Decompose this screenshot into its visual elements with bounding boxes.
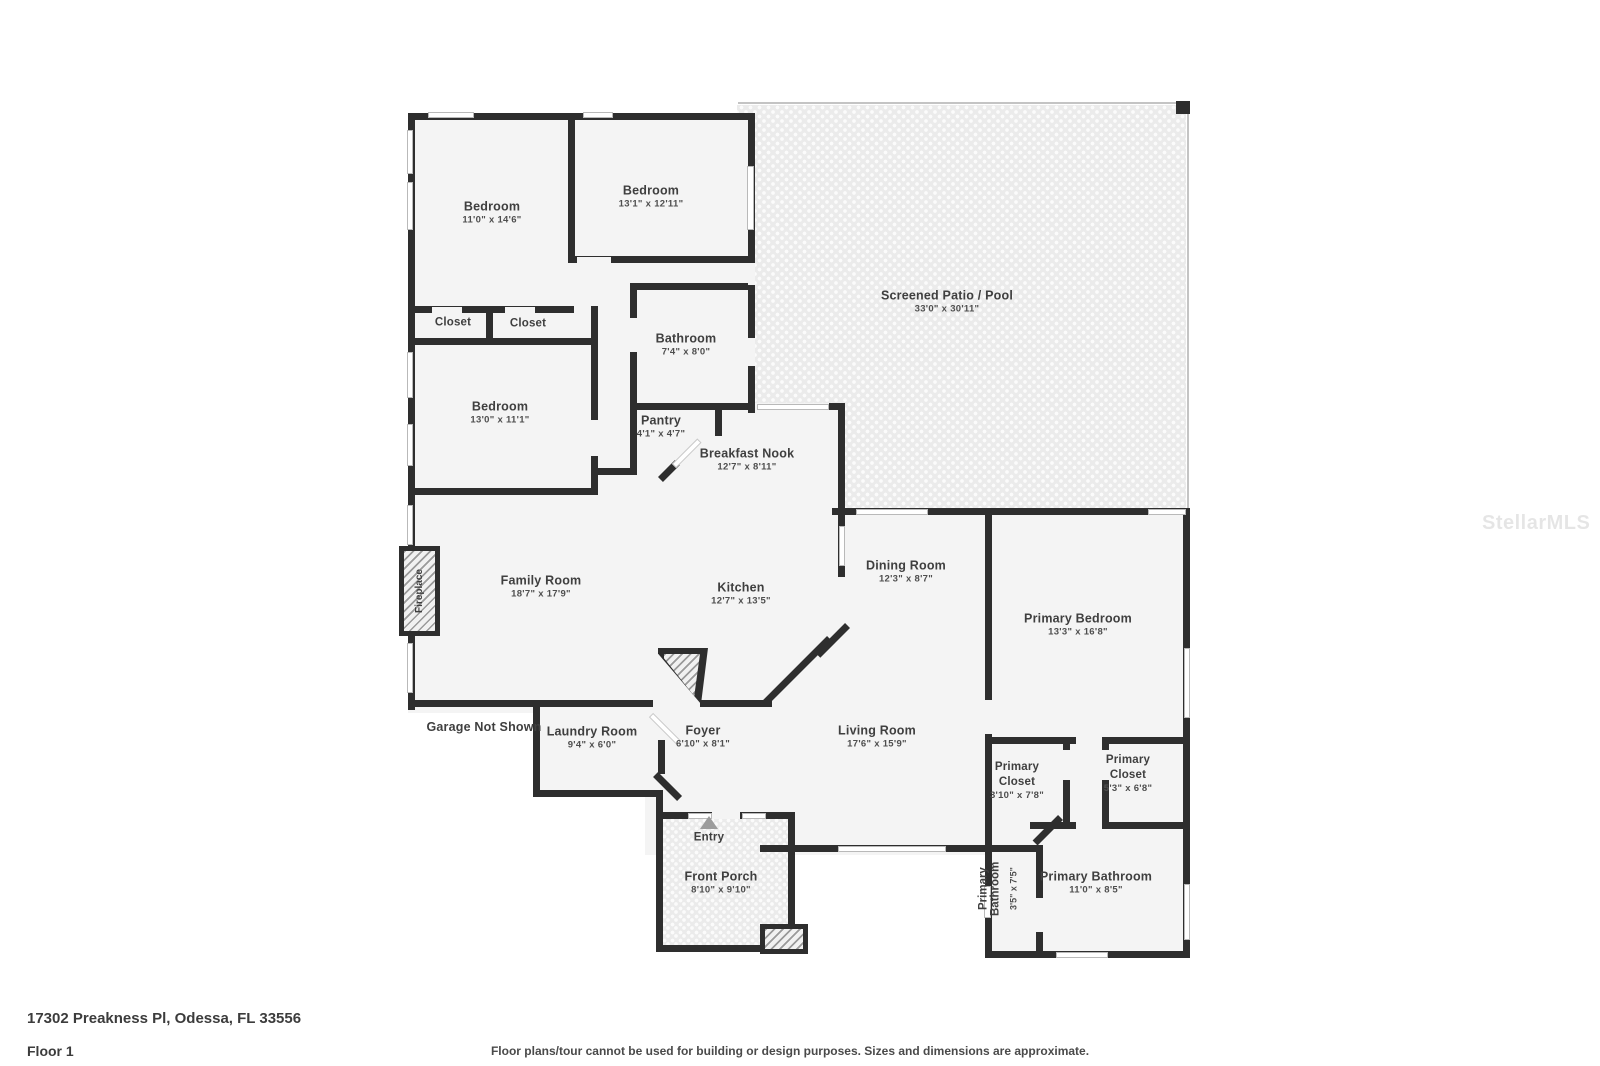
room-dims: 11'0" x 14'6" (462, 215, 521, 227)
room-label-screened-patio: Screened Patio / Pool 33'0" x 30'11" (881, 288, 1013, 317)
room-label-breakfast-nook: Breakfast Nook 12'7" x 8'11" (700, 446, 795, 475)
room-label-kitchen: Kitchen 12'7" x 13'5" (711, 580, 771, 609)
room-dims: 5'3" x 6'8" (1096, 783, 1160, 795)
wall-segment (408, 700, 653, 707)
room-name: Bathroom (656, 331, 717, 347)
room-dims: 13'3" x 16'8" (1024, 627, 1132, 639)
room-name: Primary Closet (987, 760, 1047, 790)
room-name: Garage Not Shown (426, 719, 541, 735)
room-label-front-porch: Front Porch 8'10" x 9'10" (684, 869, 757, 898)
entry-label: Entry (694, 831, 724, 846)
window-marker (583, 112, 613, 118)
window-marker (407, 130, 413, 174)
wall-segment (838, 403, 845, 515)
patio-screen-top (737, 101, 1190, 105)
window-marker (747, 166, 754, 230)
room-dims: 18'7" x 17'9" (501, 589, 582, 601)
room-label-primary-bedroom: Primary Bedroom 13'3" x 16'8" (1024, 611, 1132, 640)
room-dims: 11'0" x 8'5" (1040, 885, 1152, 897)
wall-segment (630, 403, 755, 410)
room-name: Bedroom (462, 199, 521, 215)
room-label-primary-closet-a: Primary Closet 3'10" x 7'8" (987, 760, 1047, 802)
door-gap (1036, 898, 1043, 932)
room-dims: 9'4" x 6'0" (547, 740, 638, 752)
room-name: Closet (510, 317, 546, 332)
window-marker (407, 643, 413, 693)
porch-step-hatch (765, 929, 803, 949)
room-label-foyer: Foyer 6'10" x 8'1" (676, 723, 730, 752)
room-dims: 8'10" x 9'10" (684, 885, 757, 897)
garage-note-label: Garage Not Shown (426, 719, 541, 735)
room-name: Primary Bathroom (1040, 869, 1152, 885)
window-marker (742, 813, 766, 819)
wall-segment (715, 403, 722, 436)
wall-segment (591, 306, 598, 495)
wall-segment (408, 488, 598, 495)
window-marker (428, 112, 474, 118)
fireplace-box: Fireplace (399, 546, 440, 636)
window-marker (839, 526, 845, 566)
door-gap (505, 307, 535, 313)
window-marker (856, 509, 928, 515)
room-dims: 12'7" x 8'11" (700, 462, 795, 474)
window-marker (1148, 509, 1186, 515)
room-dims: 6'10" x 8'1" (676, 739, 730, 751)
window-marker (1184, 648, 1190, 718)
wall-segment (630, 283, 637, 475)
room-label-bedroom-3: Bedroom 13'0" x 11'1" (470, 399, 529, 428)
wall-segment (568, 113, 575, 263)
room-label-bedroom-1: Bedroom 11'0" x 14'6" (462, 199, 521, 228)
room-label-living-room: Living Room 17'6" x 15'9" (838, 723, 916, 752)
window-marker (838, 846, 946, 852)
room-name: Bedroom (619, 183, 684, 199)
room-name: Screened Patio / Pool (881, 288, 1013, 304)
door-gap (432, 307, 462, 313)
door-gap (577, 257, 611, 263)
door-gap (748, 338, 755, 366)
room-label-closet-a: Closet (435, 316, 471, 331)
room-label-dining-room: Dining Room 12'3" x 8'7" (866, 558, 946, 587)
fireplace-label: Fireplace (411, 569, 429, 613)
room-dims: 17'6" x 15'9" (838, 739, 916, 751)
door-gap (1063, 750, 1070, 780)
wall-segment (591, 468, 637, 475)
room-dims: 7'4" x 8'0" (656, 347, 717, 359)
disclaimer-text: Floor plans/tour cannot be used for buil… (400, 1044, 1180, 1058)
wall-segment (408, 338, 598, 345)
patio-screen-right (1186, 101, 1190, 515)
porch-step (760, 924, 808, 954)
room-dims: 13'1" x 12'11" (619, 199, 684, 211)
room-dims: 3'5" x 7'5" (1009, 868, 1019, 911)
room-label-family-room: Family Room 18'7" x 17'9" (501, 573, 582, 602)
door-gap (630, 318, 637, 352)
window-marker (407, 424, 413, 466)
door-gap (748, 263, 755, 285)
room-name: Front Porch (684, 869, 757, 885)
window-marker (1184, 884, 1190, 940)
room-dims: 13'0" x 11'1" (470, 415, 529, 427)
wall-segment (658, 740, 665, 774)
window-marker (407, 182, 413, 230)
door-gap (1076, 737, 1102, 744)
room-label-laundry-room: Laundry Room 9'4" x 6'0" (547, 724, 638, 753)
window-marker (407, 352, 413, 398)
room-name: Pantry (637, 413, 686, 429)
room-name: Kitchen (711, 580, 771, 596)
room-dims: 33'0" x 30'11" (881, 304, 1013, 316)
room-label-primary-bathroom: Primary Bathroom 11'0" x 8'5" (1040, 869, 1152, 898)
window-marker (1056, 952, 1108, 958)
room-dims: 3'10" x 7'8" (987, 790, 1047, 802)
room-name: Primary Bedroom (1024, 611, 1132, 627)
room-name: Family Room (501, 573, 582, 589)
room-name: Dining Room (866, 558, 946, 574)
floor-plan-page: { "page": { "address": "17302 Preakness … (0, 0, 1600, 1066)
room-label-bedroom-2: Bedroom 13'1" x 12'11" (619, 183, 684, 212)
room-name: Breakfast Nook (700, 446, 795, 462)
room-name: Laundry Room (547, 724, 638, 740)
door-gap (985, 700, 992, 734)
room-dims: 4'1" x 4'7" (637, 429, 686, 441)
room-dims: 12'3" x 8'7" (866, 574, 946, 586)
patio-corner-stub (1176, 101, 1190, 114)
wall-segment (1102, 822, 1190, 829)
entry-arrow-icon (700, 816, 718, 829)
room-name: Living Room (838, 723, 916, 739)
room-name: Primary Bathroom (978, 843, 1002, 935)
room-label-primary-bathroom-small: Primary Bathroom 3'5" x 7'5" (978, 843, 1023, 935)
door-gap (591, 420, 598, 456)
room-name: Foyer (676, 723, 730, 739)
room-label-primary-closet-b: Primary Closet 5'3" x 6'8" (1096, 753, 1160, 795)
room-name: Fireplace (414, 569, 425, 613)
room-label-pantry: Pantry 4'1" x 4'7" (637, 413, 686, 442)
room-label-closet-b: Closet (510, 317, 546, 332)
room-name: Primary Closet (1096, 753, 1160, 783)
window-marker (407, 505, 413, 545)
stellar-mls-watermark: StellarMLS (1482, 512, 1590, 535)
wall-segment (533, 790, 663, 797)
window-marker (757, 404, 829, 410)
address-text: 17302 Preakness Pl, Odessa, FL 33556 (27, 1010, 301, 1027)
room-dims: 12'7" x 13'5" (711, 596, 771, 608)
wall-segment (630, 283, 755, 290)
room-name: Entry (694, 831, 724, 846)
floor-label: Floor 1 (27, 1043, 74, 1059)
room-label-bathroom: Bathroom 7'4" x 8'0" (656, 331, 717, 360)
room-name: Bedroom (470, 399, 529, 415)
room-name: Closet (435, 316, 471, 331)
